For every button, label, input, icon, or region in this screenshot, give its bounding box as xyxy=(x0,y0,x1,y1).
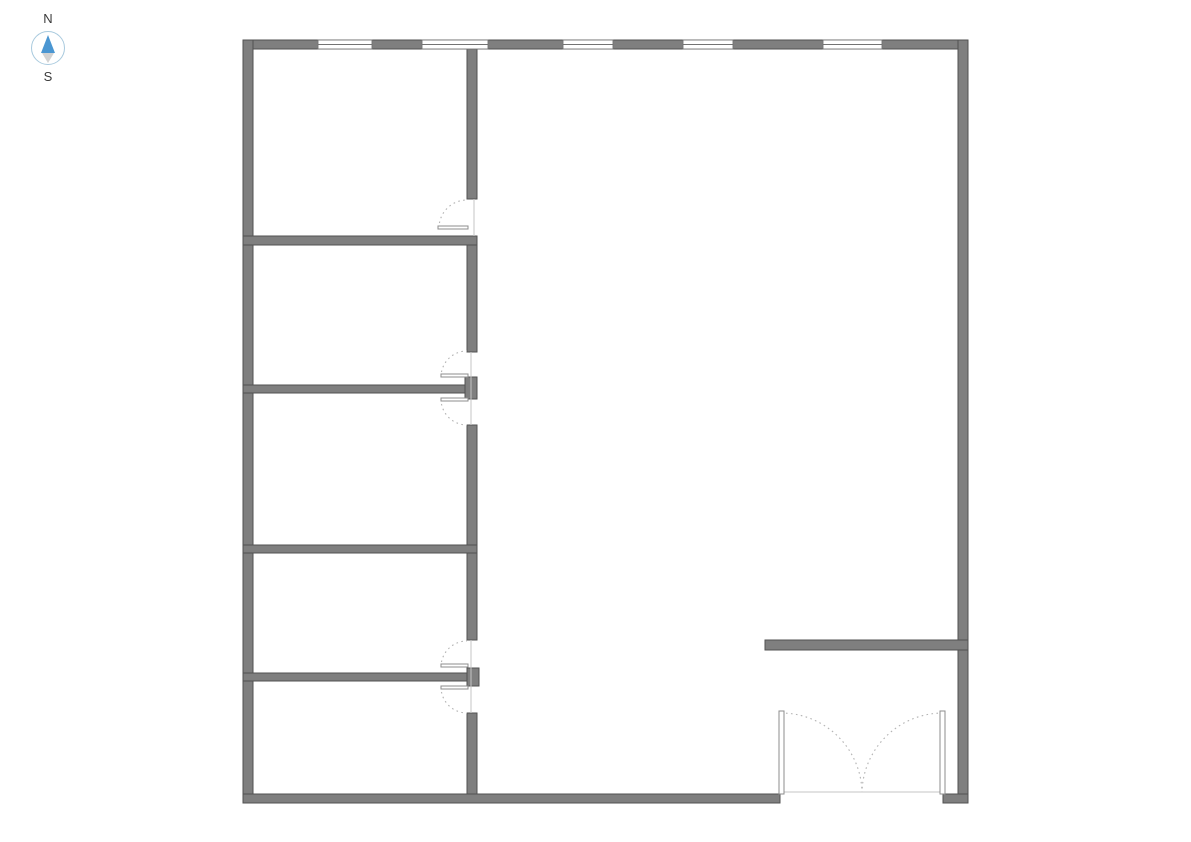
entry-door-left-swing-arc xyxy=(781,713,862,792)
wall-room-divider-4 xyxy=(243,673,467,681)
door-3-lower-swing-arc xyxy=(441,687,467,713)
door-3-lower-panel xyxy=(441,686,468,689)
floorplan-page: N S xyxy=(0,0,1191,842)
wall-room-divider-4-end-cap xyxy=(467,668,479,686)
wall-interior-vertical-seg-d xyxy=(467,713,477,794)
wall-right-partition xyxy=(765,640,968,650)
floorplan-canvas xyxy=(0,0,1191,842)
wall-exterior-bottom-left xyxy=(243,794,780,803)
wall-room-divider-1 xyxy=(243,236,477,245)
wall-exterior-bottom-right xyxy=(943,794,968,803)
wall-room-divider-2 xyxy=(243,385,465,393)
door-3-upper-swing-arc xyxy=(441,641,467,667)
wall-interior-vertical-seg-b xyxy=(467,244,477,352)
door-2-upper-swing-arc xyxy=(441,351,467,377)
entry-door-right-panel xyxy=(940,711,945,794)
wall-exterior-left xyxy=(243,40,253,803)
door-2-lower-panel xyxy=(441,398,468,401)
wall-room-divider-3 xyxy=(243,545,477,553)
wall-interior-vertical-seg-a xyxy=(467,49,477,199)
wall-exterior-right xyxy=(958,40,968,803)
entry-door-left-panel xyxy=(779,711,784,794)
door-3-upper-panel xyxy=(441,664,468,667)
door-1-swing-arc xyxy=(439,200,467,228)
entry-door-right-swing-arc xyxy=(862,713,943,792)
door-1-panel xyxy=(438,226,468,229)
door-2-lower-swing-arc xyxy=(441,399,467,425)
wall-interior-vertical-seg-c xyxy=(467,425,477,640)
door-2-upper-panel xyxy=(441,374,468,377)
